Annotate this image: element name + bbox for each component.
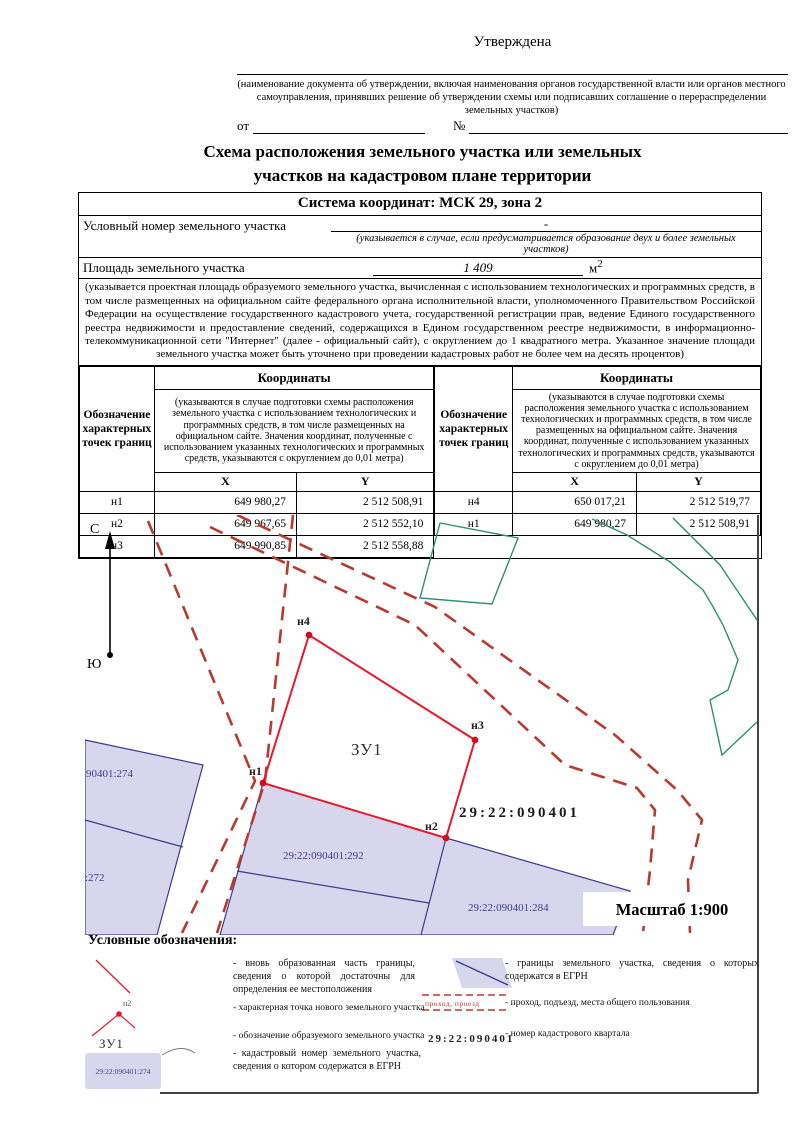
designation-header: Обозначение характерных точек границ <box>435 366 513 491</box>
number-label: № <box>453 118 469 134</box>
table-row: н1 649 980,27 2 512 508,91 <box>80 491 434 513</box>
char-point-symbol: н2 <box>92 999 135 1036</box>
page-title-line2: участков на кадастровом плане территории <box>85 164 760 188</box>
approval-signature-line <box>237 74 788 75</box>
quarter-sample-symbol: 29:22:090401 <box>428 1033 514 1045</box>
point-label-n4: н4 <box>297 614 310 628</box>
cadastral-sample-text: 29:22:090401:274 <box>95 1067 150 1076</box>
area-value-area: 1 409 м2 <box>331 258 761 278</box>
point-cell: н4 <box>435 491 513 513</box>
quarter-number-label: 29:22:090401 <box>459 805 580 821</box>
area-value: 1 409 <box>373 260 583 276</box>
conditional-number-label: Условный номер земельного участка <box>79 216 331 257</box>
passage-symbol-text: проход, проезд <box>425 999 480 1008</box>
parcel-number-274: 90401:274 <box>86 768 134 780</box>
north-arrow: С Ю <box>87 522 115 672</box>
point-n1 <box>260 780 267 787</box>
page-title-line1: Схема расположения земельного участка ил… <box>85 140 760 164</box>
date-blank-line <box>253 118 425 134</box>
conditional-number-area: - (указывается в случае, если предусматр… <box>331 216 761 257</box>
conditional-number-note: (указывается в случае, если предусматрив… <box>331 232 761 257</box>
y-cell: 2 512 508,91 <box>296 491 433 513</box>
x-cell: 649 980,27 <box>154 491 296 513</box>
area-note: (указывается проектная площадь образуемо… <box>79 279 761 365</box>
new-parcel-label: ЗУ1 <box>351 740 383 759</box>
parcel-designation-symbol: ЗУ1 <box>99 1036 124 1051</box>
legend-item-char-point: - характерная точка нового земельного уч… <box>233 1001 425 1014</box>
info-table: Система координат: МСК 29, зона 2 Условн… <box>78 192 762 559</box>
table-row: н4 650 017,21 2 512 519,77 <box>435 491 761 513</box>
approval-date-number-row: от № <box>237 118 788 134</box>
area-label: Площадь земельного участка <box>79 258 331 278</box>
parcel-number-272: :272 <box>85 872 105 884</box>
new-boundary-symbol <box>96 960 130 993</box>
coordinates-header: Координаты <box>154 366 434 389</box>
number-blank-line <box>469 118 788 134</box>
cadastral-sample-symbol: 29:22:090401:274 <box>85 1048 195 1089</box>
char-point-symbol-label: н2 <box>123 999 131 1008</box>
conditional-number-row: Условный номер земельного участка - (ука… <box>79 216 761 258</box>
coords-table-right: Обозначение характерных точек границ Коо… <box>434 366 761 536</box>
point-n3 <box>472 737 479 744</box>
from-label: от <box>237 118 253 134</box>
x-header: X <box>513 472 637 491</box>
y-header: Y <box>637 472 761 491</box>
designation-header: Обозначение характерных точек границ <box>80 366 155 491</box>
y-header: Y <box>296 472 433 491</box>
approval-caption: (наименование документа об утверждении, … <box>235 78 788 117</box>
point-cell: н1 <box>80 491 155 513</box>
page-title: Схема расположения земельного участка ил… <box>85 140 760 188</box>
north-label: С <box>90 522 99 537</box>
point-label-n1: н1 <box>249 764 262 778</box>
egrn-boundary-symbol <box>452 958 512 988</box>
scale-label: Масштаб 1:900 <box>616 900 729 919</box>
point-n2 <box>443 835 450 842</box>
coordinates-note: (указываются в случае подготовки схемы р… <box>513 389 761 472</box>
point-label-n2: н2 <box>425 819 438 833</box>
x-cell: 650 017,21 <box>513 491 637 513</box>
legend-item-new-boundary: - вновь образованная часть границы, свед… <box>233 957 415 997</box>
coordinate-system-header: Система координат: МСК 29, зона 2 <box>79 193 761 216</box>
legend-item-passage: - проход, подъезд, места общего пользова… <box>505 996 690 1009</box>
parcel-number-284: 29:22:090401:284 <box>468 902 549 914</box>
coordinates-header: Координаты <box>513 366 761 389</box>
legend-item-egrn-boundaries: - границы земельного участка, сведения о… <box>505 957 759 983</box>
parcel-number-292: 29:22:090401:292 <box>283 850 364 862</box>
legend-item-cadastral-number: - кадастровый номер земельного участка, … <box>233 1047 421 1073</box>
conditional-number-value: - <box>331 216 761 232</box>
coordinates-note: (указываются в случае подготовки схемы р… <box>154 389 434 472</box>
scale-box: Масштаб 1:900 <box>583 892 760 926</box>
cadastral-map: н4 н3 н2 н1 ЗУ1 29:22:090401 90401:274 :… <box>85 515 760 935</box>
passage-symbol: проход, проезд <box>422 995 506 1010</box>
x-header: X <box>154 472 296 491</box>
legend-item-parcel-designation: - обозначение образуемого земельного уча… <box>233 1029 424 1042</box>
point-n4 <box>306 632 313 639</box>
area-unit: м2 <box>583 258 603 276</box>
y-cell: 2 512 519,77 <box>637 491 761 513</box>
area-row: Площадь земельного участка 1 409 м2 <box>79 258 761 279</box>
south-label: Ю <box>87 657 101 672</box>
approved-label: Утверждена <box>235 34 790 51</box>
point-label-n3: н3 <box>471 718 484 732</box>
legend-item-quarter-number: - номер кадастрового квартала <box>505 1027 630 1040</box>
